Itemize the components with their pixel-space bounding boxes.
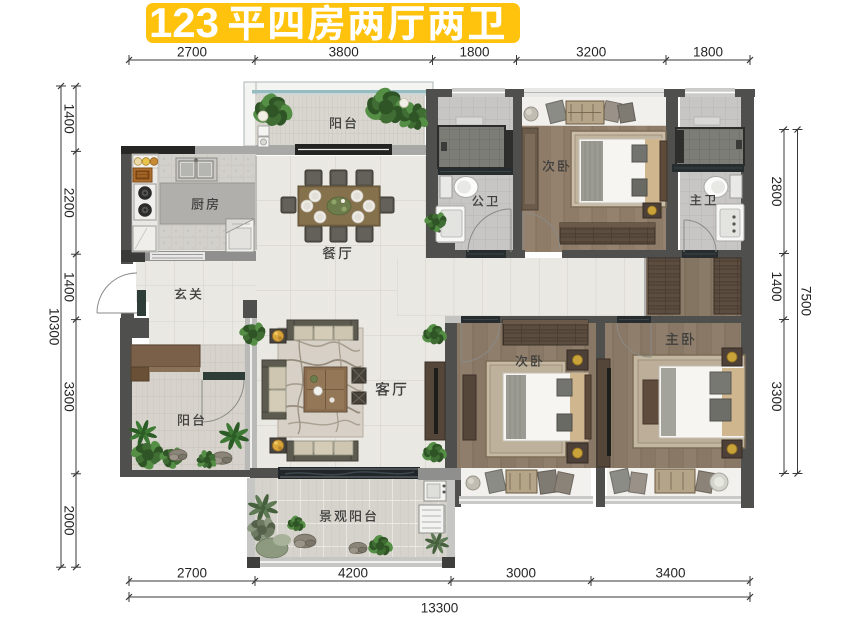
svg-text:3300: 3300 xyxy=(61,382,76,412)
svg-text:3300: 3300 xyxy=(769,381,784,411)
svg-text:3200: 3200 xyxy=(576,45,606,60)
svg-text:1400: 1400 xyxy=(769,271,784,301)
svg-text:4200: 4200 xyxy=(338,566,368,581)
svg-text:13300: 13300 xyxy=(421,601,459,616)
svg-text:1400: 1400 xyxy=(61,104,76,134)
svg-text:7500: 7500 xyxy=(798,286,813,316)
svg-text:2200: 2200 xyxy=(61,188,76,218)
svg-text:2700: 2700 xyxy=(177,566,207,581)
svg-text:2800: 2800 xyxy=(769,176,784,206)
svg-text:10300: 10300 xyxy=(46,308,61,346)
svg-text:3000: 3000 xyxy=(506,566,536,581)
svg-text:3800: 3800 xyxy=(329,45,359,60)
svg-text:1800: 1800 xyxy=(693,45,723,60)
svg-text:1800: 1800 xyxy=(459,45,489,60)
svg-text:1400: 1400 xyxy=(61,272,76,302)
svg-text:123: 123 xyxy=(149,0,219,46)
svg-text:2000: 2000 xyxy=(61,505,76,535)
svg-text:2700: 2700 xyxy=(177,45,207,60)
svg-text:3400: 3400 xyxy=(655,566,685,581)
